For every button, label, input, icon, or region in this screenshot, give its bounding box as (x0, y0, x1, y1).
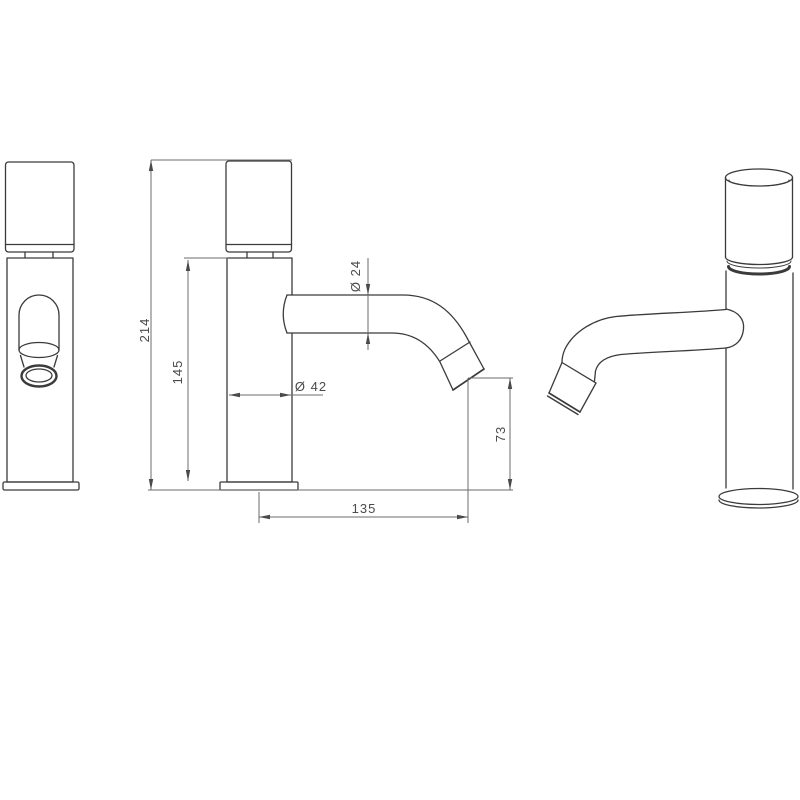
persp-handle-top-inner-rim (729, 180, 789, 186)
persp-handle-bottom-arc (726, 257, 793, 265)
persp-aerator-right-side (580, 383, 596, 412)
dimension-label-spout-diameter: Ø 24 (348, 260, 363, 292)
side-body-outline (227, 258, 292, 482)
dim-24-arrow-up (366, 333, 370, 344)
side-view (220, 161, 484, 490)
side-spout-back-cap (283, 295, 287, 333)
side-spout-outer-edge (287, 295, 484, 369)
dim-214-arrow-down (149, 479, 153, 490)
persp-spout-end-face-thickness (548, 396, 579, 415)
front-spout-joint-ellipse (19, 343, 59, 358)
dim-42-arrow-left (229, 393, 240, 397)
dimension-body-height: 145 (170, 258, 228, 481)
front-handle-outline (6, 162, 75, 252)
persp-spout-inner-edge (595, 348, 727, 381)
dimension-spout-reach: 135 (148, 378, 513, 523)
front-view (3, 162, 79, 490)
dim-145-arrow-down (186, 470, 190, 481)
persp-base-top-ellipse (719, 489, 798, 505)
dimension-spout-clearance: 73 (468, 378, 513, 490)
persp-spout-end-face (549, 393, 580, 412)
dimension-label-spout-clearance: 73 (493, 426, 508, 442)
dimension-label-body-diameter: Ø 42 (295, 379, 327, 394)
side-neck-notch (247, 252, 273, 258)
persp-aerator-left-side (549, 363, 562, 394)
technical-drawing-canvas: 214 145 Ø 42 Ø 24 135 73 (0, 0, 800, 800)
dimension-spout-diameter: Ø 24 (348, 258, 370, 350)
dim-135-arrow-left (259, 515, 270, 519)
dimension-body-diameter: Ø 42 (229, 379, 327, 397)
front-spout-silhouette (19, 295, 59, 350)
dimension-label-spout-reach: 135 (352, 501, 377, 516)
perspective-view (548, 169, 799, 508)
dim-42-arrow-right (280, 393, 291, 397)
dimension-overall-height: 214 (137, 160, 292, 490)
dim-73-arrow-down (508, 479, 512, 490)
front-neck-notch (25, 252, 53, 258)
side-aerator-joint-line (440, 342, 470, 361)
persp-handle-sides (726, 178, 793, 258)
side-handle-outline (226, 161, 292, 252)
dimension-label-overall-height: 214 (137, 318, 152, 343)
front-spout-opening (26, 369, 52, 382)
dim-214-arrow-up (149, 160, 153, 171)
dim-73-arrow-up (508, 378, 512, 389)
side-base-plate (220, 482, 298, 490)
persp-spout-back-cap (726, 309, 744, 348)
faucet-technical-drawing: 214 145 Ø 42 Ø 24 135 73 (0, 0, 800, 800)
front-base-plate (3, 482, 79, 490)
persp-spout-outer-edge (562, 310, 726, 363)
dim-24-arrow-down (366, 284, 370, 295)
persp-aerator-joint-line (562, 363, 596, 384)
dim-145-arrow-up (186, 260, 190, 271)
dim-135-arrow-right (457, 515, 468, 519)
dimension-label-body-height: 145 (170, 360, 185, 385)
front-body-outline (7, 258, 73, 482)
